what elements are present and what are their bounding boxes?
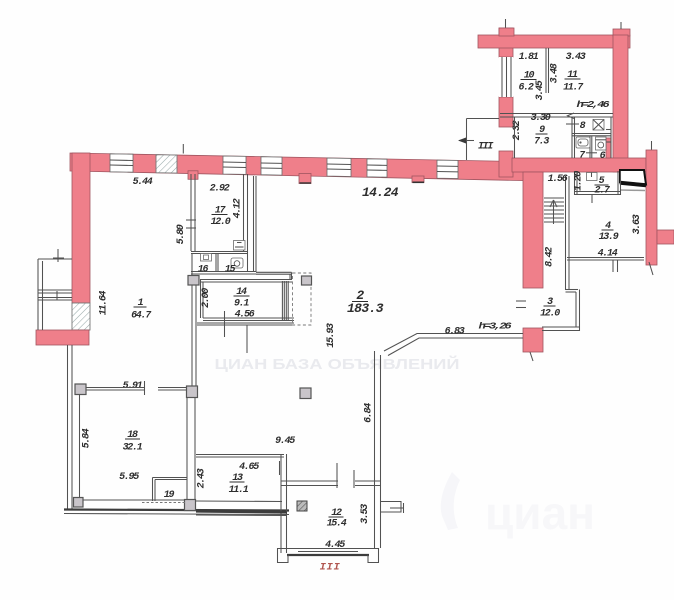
svg-text:5.95: 5.95 <box>119 472 139 483</box>
svg-text:5.80: 5.80 <box>176 224 187 244</box>
svg-text:7.3: 7.3 <box>534 137 549 148</box>
svg-text:12.0: 12.0 <box>211 217 231 228</box>
svg-text:2.32: 2.32 <box>512 120 523 140</box>
svg-text:12.0: 12.0 <box>540 309 560 320</box>
svg-text:5.44: 5.44 <box>133 177 153 188</box>
svg-text:8.42: 8.42 <box>545 247 556 267</box>
svg-text:h=3,26: h=3,26 <box>479 322 513 332</box>
svg-text:11.1: 11.1 <box>229 485 249 496</box>
svg-text:11.64: 11.64 <box>99 290 110 315</box>
svg-text:15.93: 15.93 <box>326 323 337 348</box>
svg-text:циан: циан <box>485 487 595 539</box>
svg-text:14.24: 14.24 <box>362 185 399 200</box>
svg-text:16: 16 <box>198 265 209 276</box>
svg-text:15: 15 <box>225 265 236 276</box>
svg-text:6.2: 6.2 <box>518 83 533 94</box>
svg-text:III: III <box>478 142 493 153</box>
svg-text:2.00: 2.00 <box>201 288 212 308</box>
svg-text:h=2,46: h=2,46 <box>577 100 611 110</box>
svg-text:6.84: 6.84 <box>364 403 375 423</box>
svg-text:3.45: 3.45 <box>535 80 546 100</box>
svg-text:4.65: 4.65 <box>239 462 259 473</box>
svg-text:1.20: 1.20 <box>574 171 585 191</box>
svg-text:1.56: 1.56 <box>548 174 568 185</box>
svg-text:2.43: 2.43 <box>197 468 208 488</box>
svg-text:9.45: 9.45 <box>275 436 295 447</box>
svg-text:4.12: 4.12 <box>233 198 244 218</box>
svg-text:183.3: 183.3 <box>347 301 384 316</box>
svg-text:13.9: 13.9 <box>599 232 619 243</box>
svg-text:4.45: 4.45 <box>325 540 345 551</box>
svg-text:ЦИАН БАЗА ОБЪЯВЛЕНИЙ: ЦИАН БАЗА ОБЪЯВЛЕНИЙ <box>215 355 460 373</box>
svg-text:19: 19 <box>164 490 175 501</box>
svg-text:4.14: 4.14 <box>598 249 618 260</box>
svg-text:11.7: 11.7 <box>563 83 584 94</box>
svg-text:III: III <box>320 562 341 574</box>
svg-text:3.53: 3.53 <box>360 504 371 524</box>
svg-text:32.1: 32.1 <box>123 443 143 454</box>
svg-text:3.30: 3.30 <box>531 113 551 124</box>
svg-text:64.7: 64.7 <box>131 311 152 322</box>
svg-text:4.56: 4.56 <box>235 310 255 321</box>
svg-text:6.83: 6.83 <box>445 327 465 338</box>
svg-text:3.63: 3.63 <box>632 214 643 234</box>
svg-text:9.1: 9.1 <box>234 299 249 310</box>
svg-text:1.81: 1.81 <box>519 52 539 63</box>
svg-text:15.4: 15.4 <box>327 519 347 530</box>
svg-text:2.7: 2.7 <box>594 186 610 197</box>
svg-text:3.43: 3.43 <box>566 52 586 63</box>
svg-text:2.92: 2.92 <box>210 184 230 195</box>
svg-text:3.48: 3.48 <box>550 63 561 83</box>
svg-text:5.84: 5.84 <box>82 428 93 448</box>
